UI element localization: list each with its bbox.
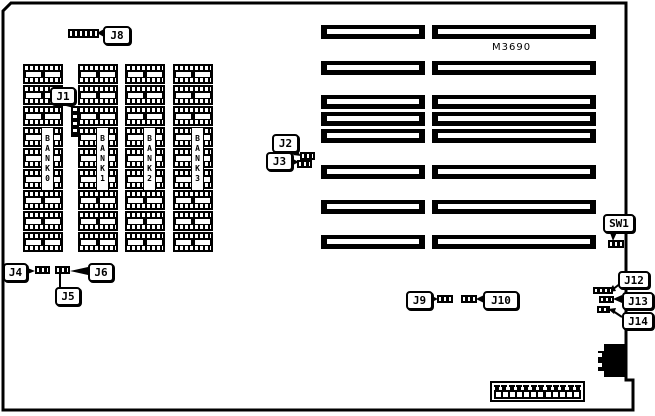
- pin-strip-j12: [593, 287, 613, 294]
- model-label: M3690: [492, 42, 531, 53]
- pin-strip-j9: [437, 295, 453, 303]
- connector-hole: [496, 392, 501, 397]
- board-outline-layer: [0, 0, 655, 416]
- sw1-callout: SW1: [603, 214, 635, 233]
- board-outline: [3, 3, 633, 410]
- bank0-label: BANK0: [41, 127, 54, 191]
- connector-hole: [531, 392, 536, 397]
- j6-arrow: [70, 267, 88, 275]
- j8-callout: J8: [103, 26, 131, 45]
- connector-hole: [517, 392, 522, 397]
- bank1-label: BANK1: [96, 127, 109, 191]
- dip-switch-sw1: [608, 240, 624, 248]
- connector-hole: [538, 392, 543, 397]
- pin-strip-j3: [297, 160, 312, 168]
- j14-callout: J14: [622, 312, 654, 330]
- j2-callout: J2: [272, 134, 299, 153]
- connector-hole: [524, 392, 529, 397]
- bank2-label: BANK2: [143, 127, 156, 191]
- pin-strip-j14: [597, 306, 610, 313]
- connector-hole-row: [494, 390, 581, 399]
- callout-pointers: [25, 29, 622, 317]
- keyboard-connector-notch: [598, 363, 602, 367]
- motherboard-diagram: BANK0 BANK1 BANK2 BANK3 M3690 J8 J1 J2 J…: [0, 0, 655, 416]
- connector-hole: [503, 392, 508, 397]
- j10-callout: J10: [483, 291, 519, 310]
- keyboard-connector: [598, 344, 627, 377]
- pin-strip-j4: [35, 266, 50, 274]
- j6-callout: J6: [88, 263, 114, 282]
- connector-hole: [567, 392, 572, 397]
- j3-callout: J3: [266, 152, 293, 171]
- connector-hole: [546, 392, 551, 397]
- pin-strip-j13: [599, 296, 614, 303]
- j13-callout: J13: [622, 292, 654, 310]
- j1-callout: J1: [50, 87, 76, 105]
- pin-strip-j5-j6: [55, 266, 70, 274]
- pin-strip-j8: [68, 29, 99, 38]
- keyboard-connector-notch: [598, 353, 602, 357]
- bank3-label: BANK3: [191, 127, 204, 191]
- j12-callout: J12: [618, 271, 650, 289]
- bottom-header-connector: [490, 381, 585, 402]
- pin-strip-j2: [300, 152, 315, 160]
- j4-callout: J4: [3, 263, 28, 282]
- pin-strip-j10: [461, 295, 477, 303]
- connector-hole: [510, 392, 515, 397]
- pin-strip-j1: [71, 106, 79, 137]
- connector-hole: [560, 392, 565, 397]
- j5-callout: J5: [55, 287, 81, 306]
- connector-hole: [553, 392, 558, 397]
- j13-arrow: [613, 295, 622, 303]
- connector-hole: [574, 392, 579, 397]
- j9-callout: J9: [406, 291, 433, 310]
